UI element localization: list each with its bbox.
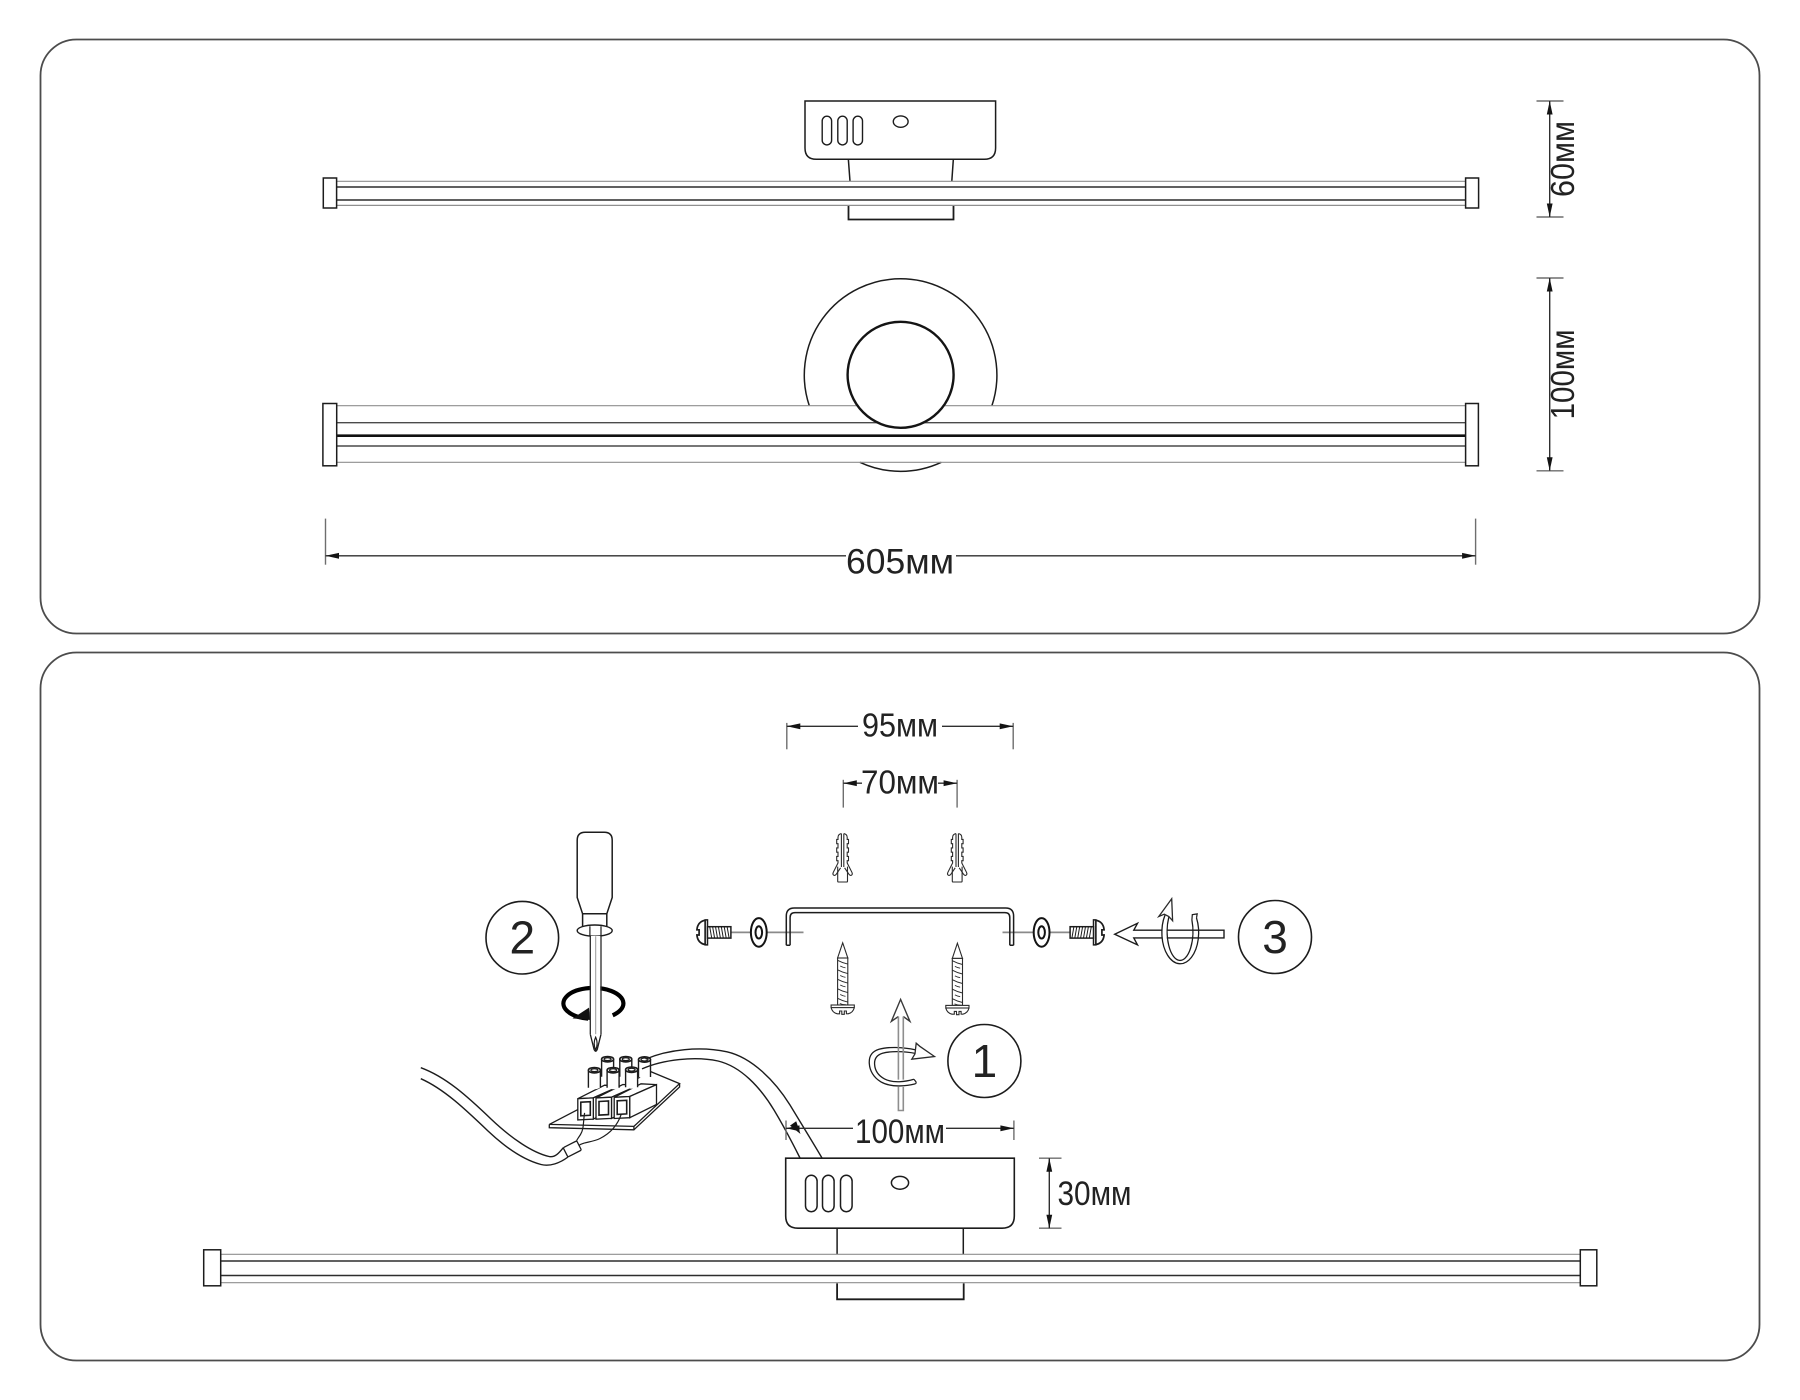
svg-text:3: 3	[1262, 911, 1288, 963]
svg-text:605мм: 605мм	[846, 543, 954, 582]
svg-text:70мм: 70мм	[861, 764, 939, 801]
svg-text:100мм: 100мм	[855, 1113, 945, 1151]
svg-text:60мм: 60мм	[1544, 121, 1581, 197]
svg-text:100мм: 100мм	[1544, 329, 1581, 419]
svg-text:1: 1	[972, 1035, 998, 1087]
svg-text:95мм: 95мм	[862, 707, 938, 744]
svg-text:2: 2	[510, 912, 536, 964]
svg-text:30мм: 30мм	[1058, 1175, 1132, 1213]
